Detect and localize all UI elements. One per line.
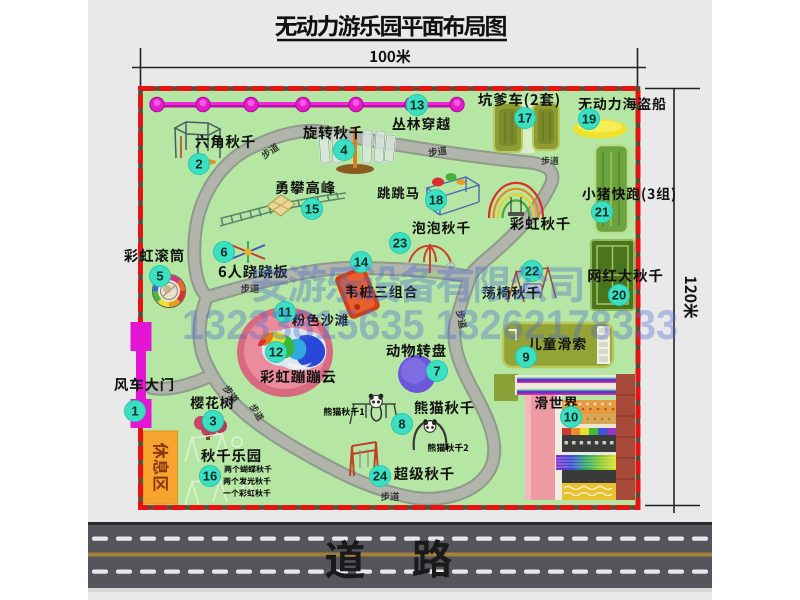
svg-text:23: 23 — [393, 236, 407, 251]
svg-text:18: 18 — [429, 193, 443, 208]
svg-text:1: 1 — [131, 404, 138, 419]
svg-text:24: 24 — [373, 469, 388, 484]
svg-text:13: 13 — [410, 98, 424, 113]
svg-text:6: 6 — [220, 245, 227, 260]
svg-text:3: 3 — [209, 414, 216, 429]
svg-text:15: 15 — [305, 202, 319, 217]
svg-text:21: 21 — [595, 205, 609, 220]
svg-text:8: 8 — [398, 417, 405, 432]
svg-text:10: 10 — [564, 410, 578, 425]
svg-text:7: 7 — [433, 364, 440, 379]
svg-text:2: 2 — [195, 157, 202, 172]
svg-text:19: 19 — [582, 112, 596, 127]
svg-text:4: 4 — [340, 143, 348, 158]
svg-text:17: 17 — [518, 111, 532, 126]
svg-text:5: 5 — [156, 269, 163, 284]
svg-text:16: 16 — [203, 469, 217, 484]
svg-text:9: 9 — [522, 350, 529, 365]
svg-text:13233815635 13262178333: 13233815635 13262178333 — [182, 301, 678, 348]
